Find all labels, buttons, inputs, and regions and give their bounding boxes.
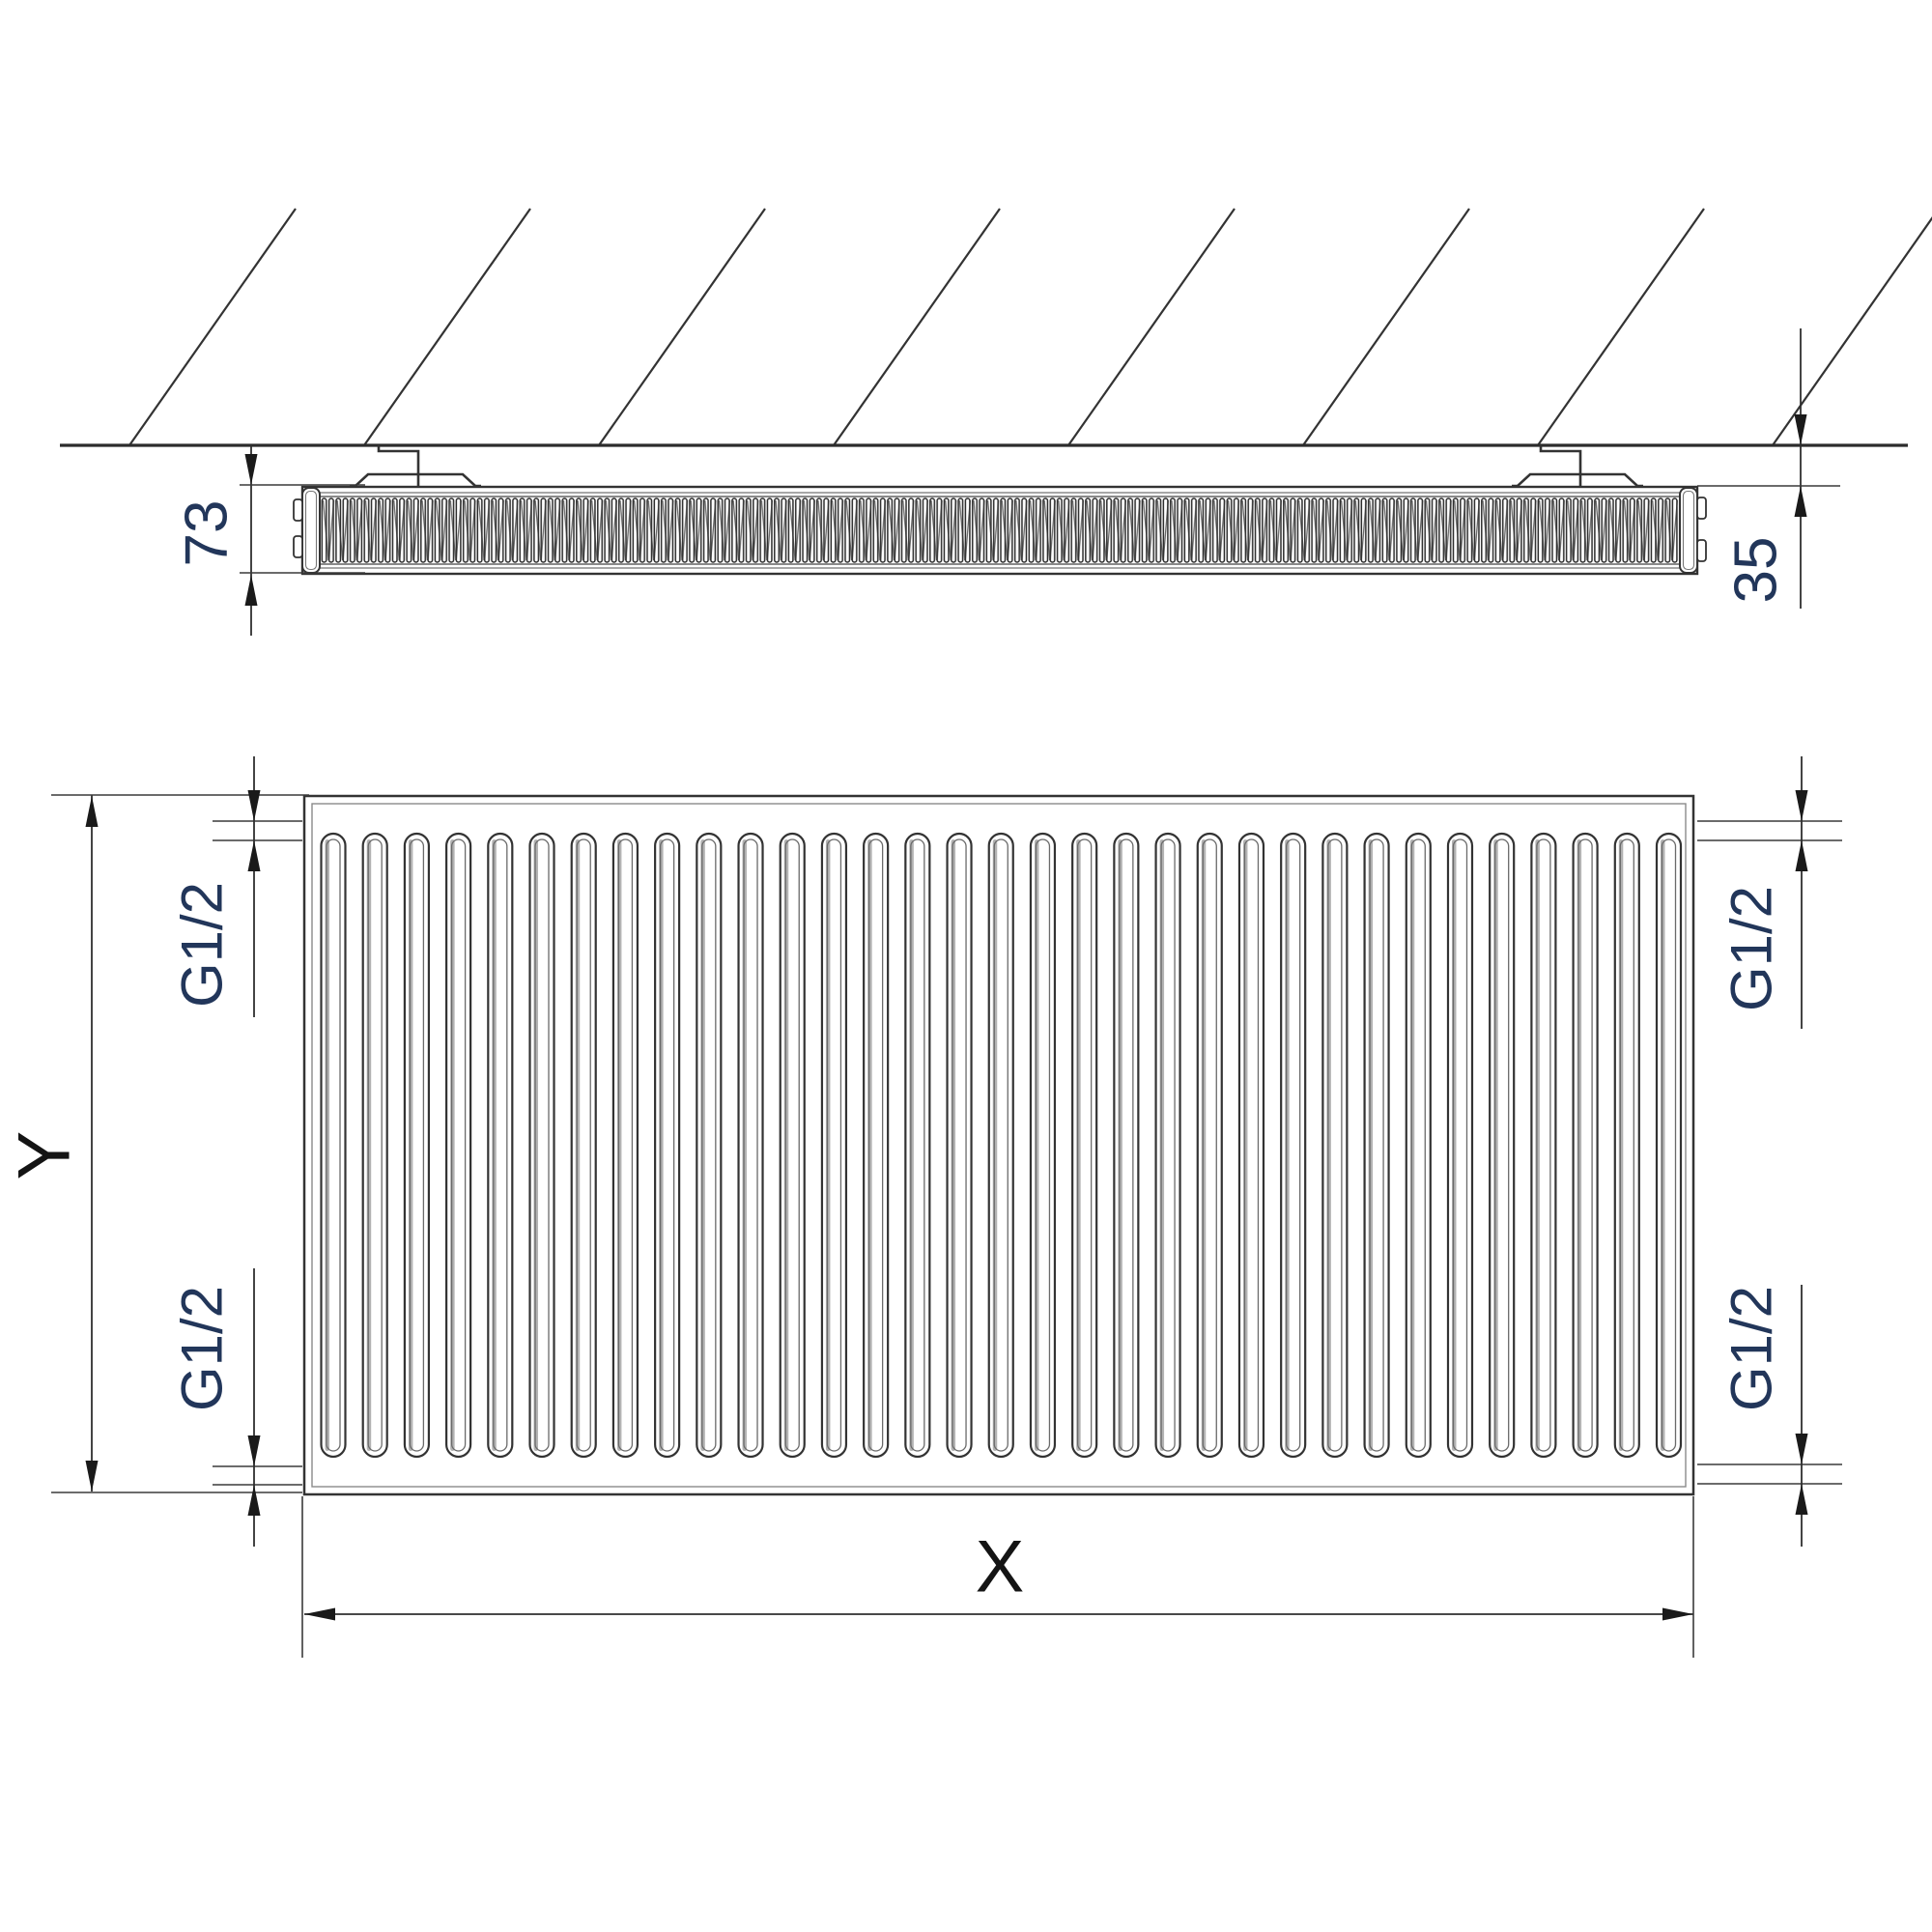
fin-channel xyxy=(1198,834,1222,1457)
left-connection-boss-top xyxy=(294,499,302,521)
fin-shading xyxy=(700,839,705,1451)
top-view xyxy=(294,445,1706,574)
fin-shading xyxy=(1118,839,1122,1451)
fin-shading xyxy=(1369,839,1374,1451)
fin-shading xyxy=(1410,839,1415,1451)
fin-shading xyxy=(659,839,664,1451)
arrow-down-icon xyxy=(248,790,261,821)
fin-shading xyxy=(1035,839,1039,1451)
fin-shading xyxy=(367,839,372,1451)
arrow-up-icon xyxy=(248,840,261,871)
fin-channel xyxy=(1281,834,1305,1457)
fin-shading xyxy=(952,839,956,1451)
fin-shading xyxy=(450,839,455,1451)
fin-shading xyxy=(743,839,748,1451)
fin-shading xyxy=(1577,839,1582,1451)
arrow-up-icon xyxy=(245,575,258,606)
fin-channel xyxy=(864,834,888,1457)
fin-channel xyxy=(1365,834,1389,1457)
hatch-line xyxy=(1303,209,1469,445)
arrow-up-icon xyxy=(248,1485,261,1516)
fin-channel xyxy=(1615,834,1639,1457)
width-dimension-label: X xyxy=(976,1526,1025,1608)
fin-shading xyxy=(909,839,914,1451)
hatch-line xyxy=(599,209,765,445)
fin-channel xyxy=(613,834,638,1457)
drawing-canvas: 73 35 Y X xyxy=(0,0,1932,1932)
fin-shading xyxy=(534,839,539,1451)
fin-shading xyxy=(1326,839,1331,1451)
dimension-connection-bottom-right: G1/2 xyxy=(1719,1285,1808,1547)
arrow-up-icon xyxy=(1796,1484,1808,1515)
fin-channel xyxy=(1657,834,1681,1457)
fin-channel xyxy=(696,834,721,1457)
dimension-wall-clearance-35: 35 xyxy=(1697,328,1840,609)
fin-shading xyxy=(326,839,330,1451)
arrow-up-icon xyxy=(86,796,99,827)
wall-hatching xyxy=(129,209,1932,445)
arrow-up-icon xyxy=(1796,840,1808,871)
fin-channel xyxy=(322,834,346,1457)
fin-shading xyxy=(576,839,581,1451)
fin-channel xyxy=(989,834,1013,1457)
fin-shading xyxy=(1452,839,1457,1451)
fin-channel xyxy=(1531,834,1555,1457)
fin-channel xyxy=(1448,834,1472,1457)
hatch-line xyxy=(1068,209,1235,445)
connection-label-top-left: G1/2 xyxy=(170,882,235,1008)
arrow-down-icon xyxy=(1796,790,1808,821)
dimension-height-y: Y xyxy=(4,795,310,1492)
fin-shading xyxy=(492,839,497,1451)
fin-channel xyxy=(1072,834,1096,1457)
arrow-down-icon xyxy=(245,454,258,485)
connection-label-bottom-left: G1/2 xyxy=(170,1286,235,1411)
arrow-down-icon xyxy=(248,1435,261,1466)
right-connection-boss-bottom xyxy=(1697,540,1706,561)
fin-shading xyxy=(1619,839,1624,1451)
top-view-right-end-cap xyxy=(1680,488,1697,573)
fin-channel xyxy=(948,834,972,1457)
height-dimension-label: Y xyxy=(4,1131,86,1180)
wall-clearance-dimension-label: 35 xyxy=(1723,537,1790,604)
arrow-up-icon xyxy=(1795,486,1807,517)
left-connection-boss-bottom xyxy=(294,536,302,557)
fin-channel xyxy=(1156,834,1180,1457)
fin-shading xyxy=(1076,839,1081,1451)
connection-label-top-right: G1/2 xyxy=(1719,886,1784,1011)
fin-shading xyxy=(1493,839,1498,1451)
fin-channel xyxy=(1406,834,1431,1457)
wall-section xyxy=(60,209,1932,445)
fin-channel xyxy=(1574,834,1598,1457)
fin-channel xyxy=(530,834,554,1457)
fin-shading xyxy=(1160,839,1165,1451)
arrow-down-icon xyxy=(1796,1434,1808,1464)
top-view-corrugation-texture xyxy=(321,497,1679,564)
connection-stub-bottom-left xyxy=(213,1466,302,1485)
fin-shading xyxy=(993,839,998,1451)
fin-channel xyxy=(446,834,470,1457)
arrow-right-icon xyxy=(1662,1608,1693,1621)
fin-channel xyxy=(1239,834,1264,1457)
fin-channel xyxy=(488,834,512,1457)
fin-channel xyxy=(905,834,929,1457)
fin-shading xyxy=(826,839,831,1451)
fin-channel xyxy=(822,834,846,1457)
fin-channel xyxy=(739,834,763,1457)
depth-dimension-label: 73 xyxy=(174,500,241,567)
connection-label-bottom-right: G1/2 xyxy=(1719,1286,1784,1411)
right-connection-boss-top xyxy=(1697,497,1706,519)
fin-shading xyxy=(784,839,789,1451)
fin-shading xyxy=(409,839,413,1451)
front-view xyxy=(213,796,1842,1494)
fin-shading xyxy=(617,839,622,1451)
mounting-bracket-left xyxy=(350,445,481,486)
fin-channel xyxy=(1114,834,1138,1457)
connection-stub-top-right xyxy=(1697,821,1842,840)
arrow-down-icon xyxy=(86,1461,99,1492)
fin-channel xyxy=(781,834,805,1457)
radiator-dimension-drawing: 73 35 Y X xyxy=(0,0,1932,1932)
fin-shading xyxy=(1243,839,1248,1451)
hatch-line xyxy=(364,209,530,445)
dimension-connection-top-right: G1/2 xyxy=(1719,756,1808,1029)
fin-shading xyxy=(867,839,872,1451)
fin-shading xyxy=(1285,839,1290,1451)
fin-channel xyxy=(363,834,387,1457)
hatch-line xyxy=(129,209,296,445)
hatch-line xyxy=(834,209,1000,445)
dimension-connection-bottom-left: G1/2 xyxy=(170,1268,261,1547)
fin-channel xyxy=(1031,834,1055,1457)
hatch-line xyxy=(1773,209,1932,445)
connection-stub-top-left xyxy=(213,821,302,840)
fin-channel xyxy=(1322,834,1347,1457)
connection-stub-bottom-right xyxy=(1697,1464,1842,1484)
fin-channel xyxy=(405,834,429,1457)
hatch-line xyxy=(1538,209,1704,445)
fin-shading xyxy=(1661,839,1665,1451)
fin-shading xyxy=(1202,839,1207,1451)
arrow-left-icon xyxy=(304,1608,335,1621)
arrow-down-icon xyxy=(1795,414,1807,445)
fin-channel xyxy=(1490,834,1514,1457)
fin-channel xyxy=(572,834,596,1457)
fin-shading xyxy=(1535,839,1540,1451)
fin-channel xyxy=(655,834,679,1457)
dimension-width-x: X xyxy=(302,1496,1693,1658)
mounting-bracket-right xyxy=(1512,445,1643,486)
top-view-left-end-cap xyxy=(302,488,320,573)
